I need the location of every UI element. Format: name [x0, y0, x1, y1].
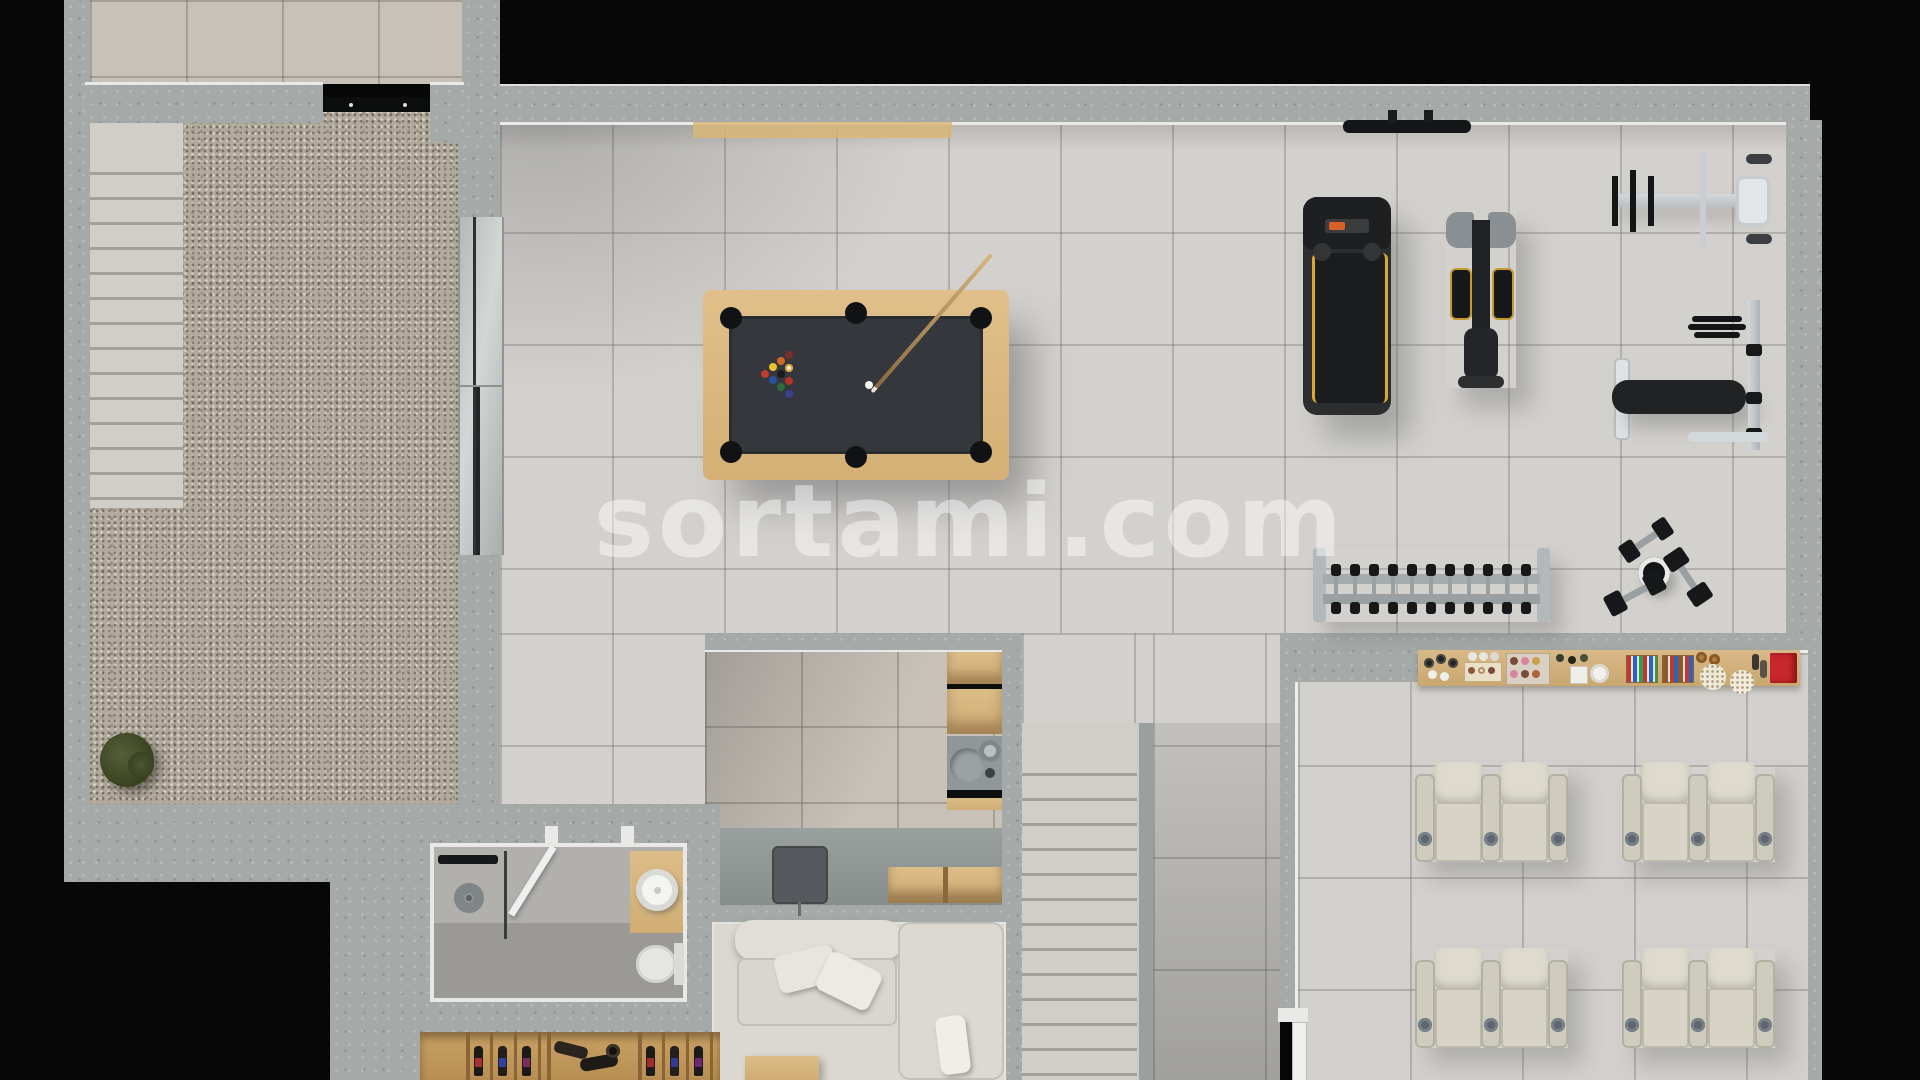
press-weight-peg — [1630, 170, 1636, 232]
pocket — [720, 307, 742, 329]
cupholder — [1551, 1018, 1565, 1032]
snack-counter — [1418, 650, 1800, 686]
counter-bottle-pair — [1752, 654, 1768, 682]
shelf-ledge — [947, 798, 1002, 810]
wine-bottle — [522, 1046, 531, 1076]
shrub-lobe — [128, 752, 154, 778]
bench-pad — [1612, 380, 1746, 414]
recliner-pair — [1622, 762, 1775, 862]
cupholder — [1484, 1018, 1498, 1032]
billiard-ball — [761, 370, 769, 378]
rack-dumbbell — [1350, 564, 1360, 614]
cupholder — [1691, 832, 1705, 846]
press-handle — [1746, 234, 1772, 244]
staircase — [1022, 723, 1137, 1080]
glass-door-frame — [476, 387, 480, 555]
rack-dumbbell — [1483, 564, 1493, 614]
wine-rack-cell-divider — [514, 1032, 517, 1080]
cinema-door-jamb — [1278, 1008, 1308, 1022]
coffee-table — [745, 1056, 819, 1080]
counter-plates — [1570, 664, 1614, 684]
glass-door-seam — [460, 385, 502, 387]
counter-bottles — [1424, 654, 1458, 680]
press-weight-peg — [1648, 176, 1654, 226]
bench-press — [1608, 300, 1774, 450]
shelf-box — [947, 652, 1002, 684]
sliding-door-track — [323, 97, 431, 112]
patio-wall-upper — [458, 140, 500, 217]
patio-wall-lower — [458, 555, 500, 845]
shower-bar — [438, 855, 498, 864]
counter-candy-box — [1626, 655, 1658, 683]
floorplan-render: sortami.com — [0, 0, 1920, 1080]
pocket — [845, 302, 867, 324]
treadmill-side-grip — [1313, 243, 1331, 261]
wine-rack-cell-divider — [638, 1032, 642, 1080]
wall-bar — [1343, 120, 1471, 133]
dumbbell — [1662, 546, 1714, 608]
rack-dumbbell — [1407, 564, 1417, 614]
pocket — [845, 446, 867, 468]
storage-room-corner-wall — [430, 82, 464, 143]
wine-rack — [420, 1032, 720, 1080]
door-roller — [403, 103, 407, 107]
plate-stack — [1688, 324, 1746, 330]
treadmill-belt — [1312, 253, 1388, 403]
billiard-ball — [777, 383, 785, 391]
wall-bar-handle — [1388, 110, 1397, 122]
toilet-bowl — [636, 945, 676, 983]
wall-bench — [693, 122, 952, 138]
wine-rack-cell-divider — [662, 1032, 665, 1080]
cupholder — [1625, 1018, 1639, 1032]
cupholder — [1758, 1018, 1772, 1032]
vessel-sink — [636, 869, 678, 911]
wine-bottle — [670, 1046, 679, 1076]
storage-room-bottom-wall — [85, 82, 323, 123]
rack-dumbbell — [1464, 564, 1474, 614]
elliptical-rear-foot — [1458, 376, 1504, 388]
recliner-pair — [1415, 762, 1568, 862]
rack-dumbbell — [1331, 564, 1341, 614]
top-wall — [500, 84, 1810, 125]
counter-caps — [1556, 654, 1596, 664]
treadmill-side-grip — [1363, 243, 1381, 261]
billiard-ball — [769, 363, 777, 371]
wine-bottle — [646, 1046, 655, 1076]
elliptical-pedal — [1492, 268, 1514, 320]
rack-dumbbell — [1445, 564, 1455, 614]
rack-dumbbell — [1388, 564, 1398, 614]
right-wall-gym — [1786, 120, 1822, 633]
pocket — [720, 441, 742, 463]
counter-cups — [1468, 652, 1498, 662]
wine-rack-cell-divider — [538, 1032, 541, 1080]
cupholder — [1418, 832, 1432, 846]
desk-monitor — [772, 846, 828, 904]
billiard-ball — [785, 364, 793, 372]
kitchenette-top-wall — [705, 633, 1022, 652]
cinema-top-wall — [1418, 633, 1810, 650]
wine-rack-cell-divider — [466, 1032, 470, 1080]
billiard-ball — [785, 351, 793, 359]
rack-grip — [1746, 344, 1762, 356]
dumbbell — [1602, 569, 1667, 618]
cinema-topleft-wall — [1280, 633, 1418, 682]
cupholder — [1484, 832, 1498, 846]
cupholder — [1418, 1018, 1432, 1032]
bench-foot — [1688, 432, 1768, 442]
cupholder — [1758, 832, 1772, 846]
toilet-tank — [674, 943, 684, 985]
wine-bottle — [474, 1046, 483, 1076]
elliptical-trainer — [1446, 210, 1516, 388]
counter-popcorn-bowl — [1700, 664, 1726, 690]
shoulder-press-machine — [1608, 152, 1774, 246]
loose-dumbbells — [1592, 524, 1710, 624]
shower-partition — [504, 851, 507, 939]
shelf-divider — [943, 867, 948, 903]
treadmill-display — [1329, 222, 1345, 230]
cinema-left-wall — [1280, 682, 1295, 1012]
billiard-ball — [777, 370, 785, 378]
cinema-door-leaf — [1292, 1022, 1307, 1080]
shower-drain — [454, 883, 484, 913]
staircase-treads — [1022, 751, 1137, 1080]
rack-dumbbell — [1502, 564, 1512, 614]
billiard-ball — [785, 377, 793, 385]
press-weight-peg — [1612, 176, 1618, 226]
bottom-shelves — [888, 867, 1002, 903]
billiard-ball — [777, 357, 785, 365]
sink-unit — [947, 736, 1002, 790]
wine-rack-cell-divider — [710, 1032, 713, 1080]
rack-dumbbell — [1521, 564, 1531, 614]
billiard-ball — [785, 390, 793, 398]
recliner-pair — [1622, 948, 1775, 1048]
storage-room-floor — [90, 0, 462, 84]
courtyard-bottom-wall — [64, 804, 460, 882]
wine-bottle — [498, 1046, 507, 1076]
rack-end-plate — [1313, 548, 1326, 622]
elliptical-handle — [1488, 212, 1516, 248]
press-handle — [1746, 154, 1772, 164]
monitor-stand — [798, 902, 801, 916]
billiard-felt — [729, 316, 983, 454]
courtyard-stairs-treads — [90, 150, 183, 508]
elliptical-pedal — [1450, 268, 1472, 320]
rack-dumbbell — [1426, 564, 1436, 614]
counter-donut-box — [1464, 662, 1502, 682]
dumbbell-rack — [1313, 548, 1550, 622]
shelf-box — [947, 689, 1002, 734]
shelf-gap — [947, 790, 1002, 798]
cupholder — [1551, 832, 1565, 846]
popcorn-box — [1770, 653, 1797, 683]
elliptical-handle — [1446, 212, 1474, 248]
recliner-pair — [1415, 948, 1568, 1048]
billiard-table — [703, 290, 1009, 480]
storage-room-right-wall — [462, 0, 500, 140]
sink-faucet — [979, 740, 1001, 762]
counter-popcorn-bowl — [1730, 670, 1754, 694]
wine-rack-cell-divider — [686, 1032, 689, 1080]
hall-lower-floor — [500, 633, 708, 804]
sink-knob — [985, 768, 995, 778]
right-wall-cinema — [1808, 633, 1822, 1080]
plate-stack — [1694, 332, 1740, 338]
counter-candy-box — [1662, 655, 1694, 683]
cupholder — [1691, 1018, 1705, 1032]
cinema-access-floor — [1153, 633, 1280, 1080]
stair-corridor-floor — [1022, 633, 1153, 723]
wine-bottle — [694, 1046, 703, 1076]
cupholder — [1625, 832, 1639, 846]
left-outer-wall — [64, 0, 90, 882]
press-upright — [1700, 152, 1706, 246]
press-seat-pad — [1736, 176, 1770, 226]
wine-rack-cell-divider — [547, 1032, 551, 1080]
rack-end-plate — [1537, 548, 1550, 622]
wine-bottle — [553, 1040, 589, 1060]
pocket — [970, 307, 992, 329]
plate-stack — [1692, 316, 1742, 322]
door-roller — [349, 103, 353, 107]
wine-bottle — [606, 1044, 620, 1058]
rack-grip — [1746, 392, 1762, 404]
treadmill-console — [1325, 219, 1369, 233]
counter-cupcake-tray — [1506, 653, 1550, 685]
billiard-ball — [769, 376, 777, 384]
wine-rack-cell-divider — [490, 1032, 493, 1080]
pocket — [970, 441, 992, 463]
shower-glass-door — [508, 845, 556, 917]
patio-glass-doors — [458, 217, 504, 555]
bathroom-floor — [430, 843, 687, 1002]
treadmill — [1303, 197, 1391, 415]
courtyard-stairs — [90, 120, 183, 508]
elliptical-base — [1464, 328, 1498, 380]
wall-bar-handle — [1424, 110, 1433, 122]
rack-dumbbell — [1369, 564, 1379, 614]
